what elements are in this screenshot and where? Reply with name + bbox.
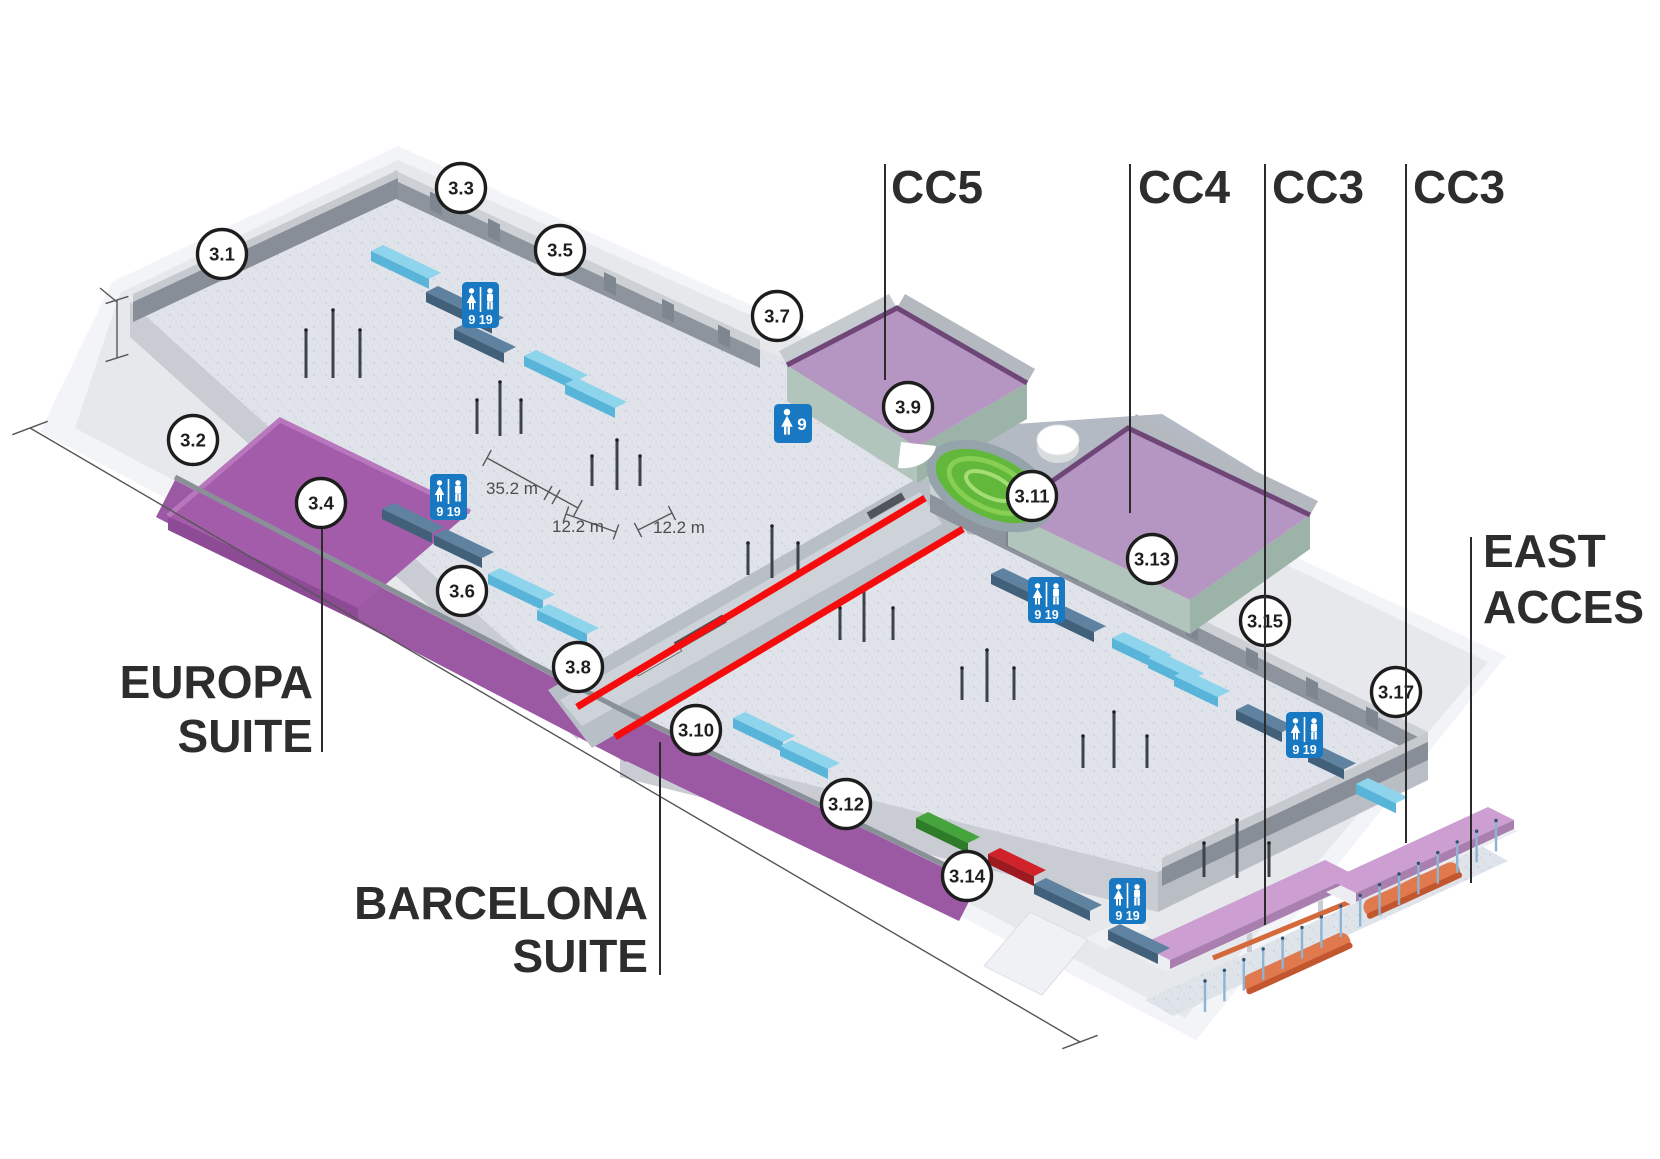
flag-pole-tip [1339,904,1342,907]
marker-label: 3.9 [895,397,921,418]
marker-label: 3.11 [1015,486,1050,507]
label-barcelona-suite-2: SUITE [513,930,648,982]
restroom-sign: 9 19 [1286,712,1323,758]
column-tip [770,524,774,528]
marker-label: 3.14 [949,866,986,887]
flag-pole-tip [1242,958,1245,961]
marker-label: 3.6 [449,581,475,602]
dimension-label: 12.2 m [552,517,604,536]
flag-pole-tip [1223,969,1226,972]
hall-marker: 3.5 [536,226,585,275]
label-cc4: CC4 [1138,161,1230,213]
flag-pole-tip [1378,883,1381,886]
hall-marker: 3.8 [554,643,603,692]
restroom-hours: 9 19 [1292,743,1316,757]
restroom-sign: 9 19 [1109,878,1146,924]
label-cc5: CC5 [891,161,983,213]
restroom-sign: 9 19 [462,282,499,328]
column-tip [519,398,523,402]
hall-marker: 3.3 [437,164,486,213]
restroom-hours: 9 19 [1115,909,1139,923]
column-tip [1145,734,1149,738]
marker-label: 3.17 [1378,682,1414,703]
marker-label: 3.5 [547,240,573,261]
marker-label: 3.10 [678,720,714,741]
marker-label: 3.7 [764,306,790,327]
flag-pole-tip [1281,937,1284,940]
column-tip [498,380,502,384]
restroom-sign: 9 19 [1028,577,1065,623]
flag-pole-tip [1320,915,1323,918]
marker-label: 3.8 [565,657,591,678]
label-europa-suite-2: SUITE [178,710,313,762]
column-tip [304,328,308,332]
column-tip [746,541,750,545]
flag-pole-tip [1203,979,1206,982]
label-cc3-a: CC3 [1272,161,1364,213]
label-europa-suite-1: EUROPA [120,656,313,708]
column-tip [1081,734,1085,738]
flag-pole-tip [1300,926,1303,929]
label-barcelona-suite-1: BARCELONA [354,877,648,929]
column-tip [590,454,594,458]
column-tip [960,666,964,670]
flag-pole-tip [1417,862,1420,865]
flag-pole-tip [1262,947,1265,950]
dimension-label: 35.2 m [486,479,538,498]
column-tip [1267,841,1271,845]
restroom-sign-women: 9 [774,404,812,443]
marker-label: 3.3 [448,178,474,199]
column-tip [1012,666,1016,670]
column-tip [615,438,619,442]
label-east-access-1: EAST [1483,525,1606,577]
column-tip [1235,818,1239,822]
marker-label: 3.13 [1134,549,1170,570]
cylinder-column [1037,425,1079,463]
marker-label: 3.4 [308,493,334,514]
flag-pole-tip [1475,830,1478,833]
flag-pole-tip [1456,840,1459,843]
restroom-hours: 9 19 [1034,608,1058,622]
column-tip [475,398,479,402]
hall-marker: 3.13 [1128,535,1177,584]
column-tip [985,648,989,652]
hall-marker: 3.12 [822,780,871,829]
column-tip [1112,710,1116,714]
flag-pole-tip [1436,851,1439,854]
hall-marker: 3.1 [198,230,247,279]
hall-marker: 3.7 [753,292,802,341]
marker-label: 3.12 [828,794,864,815]
restroom-hours: 9 [797,415,806,434]
column-tip [1202,841,1206,845]
label-cc3-b: CC3 [1413,161,1505,213]
hall-marker: 3.10 [672,706,721,755]
marker-label: 3.2 [180,430,206,451]
marker-label: 3.1 [209,244,235,265]
dimension-label: 12.2 m [653,518,705,537]
label-east-access-2: ACCES [1483,581,1644,633]
restroom-hours: 9 19 [436,505,460,519]
column-tip [796,541,800,545]
column-tip [638,454,642,458]
flag-pole-tip [1359,894,1362,897]
hall-marker: 3.17 [1372,668,1421,717]
column-tip [891,606,895,610]
hall-marker: 3.4 [297,479,346,528]
flag-pole-tip [1494,819,1497,822]
restroom-hours: 9 19 [468,313,492,327]
floor-plan-diagram: 35.2 m 12.2 m 12.2 m 3.1 3.2 3.3 3.4 3.5… [0,0,1660,1159]
restroom-sign: 9 19 [430,474,467,520]
hall-marker: 3.14 [943,852,992,901]
floor-plan-svg: 35.2 m 12.2 m 12.2 m 3.1 3.2 3.3 3.4 3.5… [0,0,1660,1159]
column-tip [358,328,362,332]
column-tip [331,308,335,312]
flag-pole-tip [1397,872,1400,875]
hall-marker: 3.2 [169,416,218,465]
hall-marker: 3.9 [884,383,933,432]
hall-marker: 3.6 [438,567,487,616]
hall-marker: 3.11 [1008,472,1057,521]
